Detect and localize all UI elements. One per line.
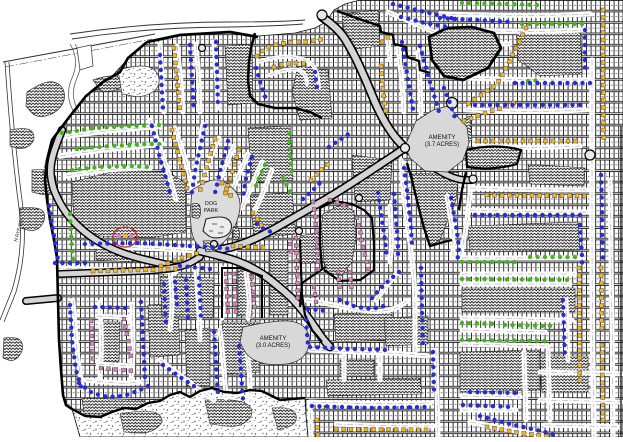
svg-text:PARK: PARK — [204, 208, 219, 214]
svg-text:(3.0 ACRES): (3.0 ACRES) — [256, 343, 290, 349]
svg-text:AMENITY: AMENITY — [429, 135, 456, 141]
svg-text:AMENITY: AMENITY — [260, 336, 287, 342]
svg-text:DOG: DOG — [205, 201, 217, 207]
svg-text:(3.7 ACRES): (3.7 ACRES) — [425, 142, 459, 148]
